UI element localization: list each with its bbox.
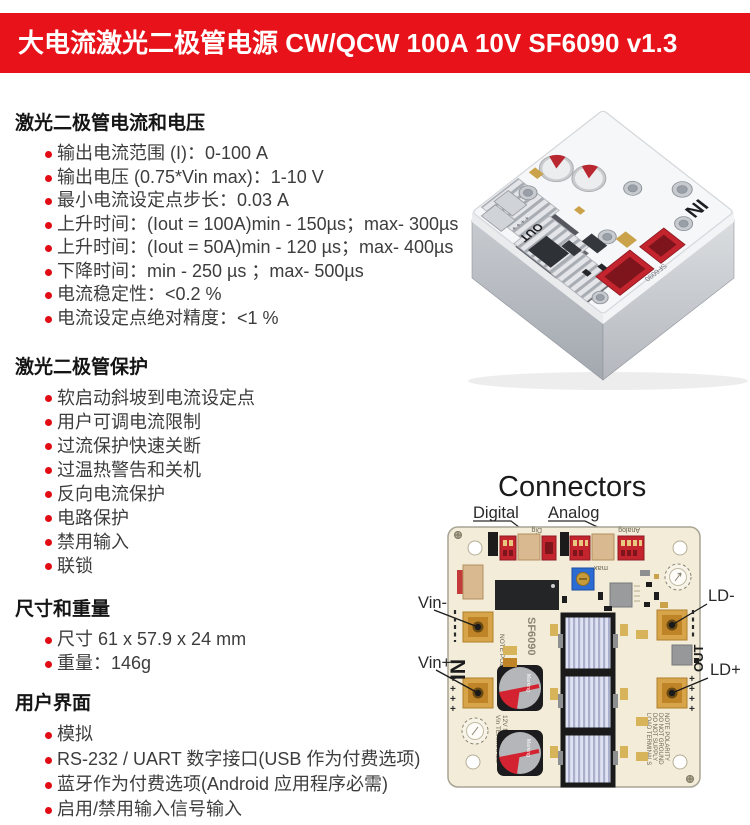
ld-minus-label: LD- — [708, 587, 735, 605]
spec-item: 反向电流保护 — [15, 482, 445, 506]
module-photo-illustration: IN OUT SF6090 + + + + — [440, 98, 750, 390]
digital-label: Digital — [473, 504, 519, 522]
black-ic — [495, 580, 559, 610]
spec-item: 输出电流范围 (I)：0-100 A — [15, 142, 445, 166]
top-connectors — [488, 532, 644, 560]
spec-text: 输出电流范围 (I)：0-100 A — [57, 143, 268, 163]
load-terminals-silk: DO NOT GROUND — [657, 713, 663, 765]
spec-text: 重量：146g — [57, 653, 151, 673]
spec-text: 最小电流设定点步长：0.03 A — [57, 190, 289, 210]
spec-item: 上升时间：(Iout = 100A)min - 150µs；max- 300µs — [15, 213, 445, 237]
section-heading: 激光二极管电流和电压 — [15, 112, 445, 136]
corner-screw-icon — [687, 776, 694, 783]
bullet-icon — [45, 807, 52, 814]
bullet-icon — [45, 661, 52, 668]
gray-chip — [610, 583, 632, 607]
analog-silk-label: Analog — [618, 526, 640, 533]
bullet-icon — [45, 757, 52, 764]
bullet-icon — [45, 419, 52, 426]
analog-connector — [592, 534, 614, 560]
bullet-icon — [45, 443, 52, 450]
max-silk-label: max — [594, 564, 608, 573]
corner-screw-icon — [455, 532, 462, 539]
spec-item: 输出电压 (0.75*Vin max)：1-10 V — [15, 166, 445, 190]
spec-item: 模拟 — [15, 722, 445, 747]
spec-text: 电路保护 — [57, 508, 129, 528]
spec-text: RS-232 / UART 数字接口(USB 作为付费选项) — [57, 749, 420, 769]
bullet-icon — [45, 515, 52, 522]
inductor — [558, 733, 618, 785]
bullet-icon — [45, 782, 52, 789]
spec-item: RS-232 / UART 数字接口(USB 作为付费选项) — [15, 747, 445, 772]
section-heading: 激光二极管保护 — [15, 356, 445, 380]
section-protection: 激光二极管保护 软启动斜坡到电流设定点 用户可调电流限制 过流保护快速关断 过温… — [15, 356, 445, 578]
gray-component — [672, 645, 692, 665]
board-capacitor: Marking — [497, 665, 543, 711]
bullet-icon — [45, 637, 52, 644]
svg-text:+: + — [450, 704, 456, 715]
mounting-hole — [466, 755, 480, 769]
spec-item: 电流设定点绝对精度：<1 % — [15, 307, 445, 331]
spec-item: 软启动斜坡到电流设定点 — [15, 386, 445, 410]
bullet-icon — [45, 222, 52, 229]
spec-text: 电流稳定性：<0.2 % — [57, 284, 222, 304]
bullet-icon — [45, 175, 52, 182]
bullet-icon — [45, 151, 52, 158]
spec-text: 禁用输入 — [57, 532, 129, 552]
spec-text: 用户可调电流限制 — [57, 412, 201, 432]
mounting-hole — [673, 541, 687, 555]
board-capacitor: Marking — [497, 730, 543, 776]
inductor — [558, 615, 618, 671]
spec-text: 电流设定点绝对精度：<1 % — [57, 308, 279, 328]
spec-text: 启用/禁用输入信号输入 — [57, 799, 242, 819]
bullet-icon — [45, 245, 52, 252]
mounting-hole — [673, 755, 687, 769]
load-terminals-silk: NOTE POLARITY — [663, 713, 669, 761]
spec-item: 过温热警告和关机 — [15, 458, 445, 482]
spec-item: 启用/禁用输入信号输入 — [15, 797, 445, 822]
spec-text: 蓝牙作为付费选项(Android 应用程序必需) — [57, 774, 388, 794]
connectors-title: Connectors — [498, 471, 646, 503]
pin1-dot — [551, 584, 555, 588]
bullet-icon — [45, 269, 52, 276]
section-dimensions: 尺寸和重量 尺寸 61 x 57.9 x 24 mm 重量：146g — [15, 598, 445, 675]
in-silk-label: IN — [447, 659, 470, 680]
ld-plus-label: LD+ — [710, 661, 741, 679]
spec-item: 上升时间：(Iout = 50A)min - 120 µs；max- 400µs — [15, 236, 445, 260]
plus-marks-right: ++++ — [689, 674, 695, 715]
spec-text: 下降时间：min - 250 µs ；max- 500µs — [57, 261, 364, 281]
svg-text:+: + — [689, 704, 695, 715]
product-photo: IN OUT SF6090 + + + + — [440, 98, 750, 390]
dig-silk-label: Dig — [531, 526, 542, 533]
analog-label: Analog — [548, 504, 599, 522]
bullet-icon — [45, 732, 52, 739]
spec-item: 过流保护快速关断 — [15, 434, 445, 458]
bullet-icon — [45, 316, 52, 323]
bullet-icon — [45, 467, 52, 474]
spec-text: 过流保护快速关断 — [57, 436, 201, 456]
spec-list: 尺寸 61 x 57.9 x 24 mm 重量：146g — [15, 628, 445, 675]
spec-item: 重量：146g — [15, 652, 445, 676]
bullet-icon — [45, 198, 52, 205]
spec-item: 尺寸 61 x 57.9 x 24 mm — [15, 628, 445, 652]
bullet-icon — [45, 491, 52, 498]
spec-item: 用户可调电流限制 — [15, 410, 445, 434]
spec-text: 联锁 — [57, 556, 93, 576]
section-user-interface: 用户界面 模拟 RS-232 / UART 数字接口(USB 作为付费选项) 蓝… — [15, 692, 445, 822]
load-terminals-silk: DO NOT SUPPLY — [651, 713, 657, 761]
spec-list: 模拟 RS-232 / UART 数字接口(USB 作为付费选项) 蓝牙作为付费… — [15, 722, 445, 822]
spec-item: 下降时间：min - 250 µs ；max- 500µs — [15, 260, 445, 284]
spec-list: 输出电流范围 (I)：0-100 A 输出电压 (0.75*Vin max)：1… — [15, 142, 445, 330]
bullet-icon — [45, 563, 52, 570]
section-electrical: 激光二极管电流和电压 输出电流范围 (I)：0-100 A 输出电压 (0.75… — [15, 112, 445, 330]
spec-text: 软启动斜坡到电流设定点 — [57, 388, 255, 408]
bullet-icon — [45, 292, 52, 299]
spec-item: 禁用输入 — [15, 530, 445, 554]
spec-item: 联锁 — [15, 554, 445, 578]
tan-relay — [463, 565, 483, 599]
cap-marking-text: Marking — [525, 739, 531, 757]
section-heading: 尺寸和重量 — [15, 598, 445, 622]
inductor — [558, 674, 618, 730]
spec-item: 电流稳定性：<0.2 % — [15, 283, 445, 307]
spec-item: 最小电流设定点步长：0.03 A — [15, 189, 445, 213]
section-heading: 用户界面 — [15, 692, 445, 716]
bullet-icon — [45, 395, 52, 402]
spec-text: 上升时间：(Iout = 100A)min - 150µs；max- 300µs — [57, 214, 458, 234]
mounting-hole — [468, 541, 482, 555]
cap-marking-text: Marking — [525, 674, 531, 692]
spec-text: 尺寸 61 x 57.9 x 24 mm — [57, 629, 246, 649]
spec-item: 蓝牙作为付费选项(Android 应用程序必需) — [15, 772, 445, 797]
connectors-figure: Connectors Digital Analog — [408, 462, 750, 810]
spec-text: 上升时间：(Iout = 50A)min - 120 µs；max- 400µs — [57, 237, 453, 257]
potentiometer-icon — [462, 718, 488, 744]
spec-item: 电路保护 — [15, 506, 445, 530]
spec-text: 过温热警告和关机 — [57, 460, 201, 480]
page-title: 大电流激光二极管电源 CW/QCW 100A 10V SF6090 v1.3 — [0, 13, 750, 73]
potentiometer-icon — [665, 564, 691, 590]
vin-minus-label: Vin- — [418, 594, 447, 612]
bullet-icon — [45, 539, 52, 546]
model-silk: SF6090 — [525, 617, 537, 656]
spec-text: 反向电流保护 — [57, 484, 165, 504]
spec-list: 软启动斜坡到电流设定点 用户可调电流限制 过流保护快速关断 过温热警告和关机 反… — [15, 386, 445, 578]
connectors-diagram: Connectors Digital Analog — [408, 462, 750, 810]
page: 大电流激光二极管电源 CW/QCW 100A 10V SF6090 v1.3 激… — [0, 0, 750, 825]
spec-text: 模拟 — [57, 724, 93, 744]
digital-connector — [518, 534, 540, 560]
spec-text: 输出电压 (0.75*Vin max)：1-10 V — [57, 167, 324, 187]
